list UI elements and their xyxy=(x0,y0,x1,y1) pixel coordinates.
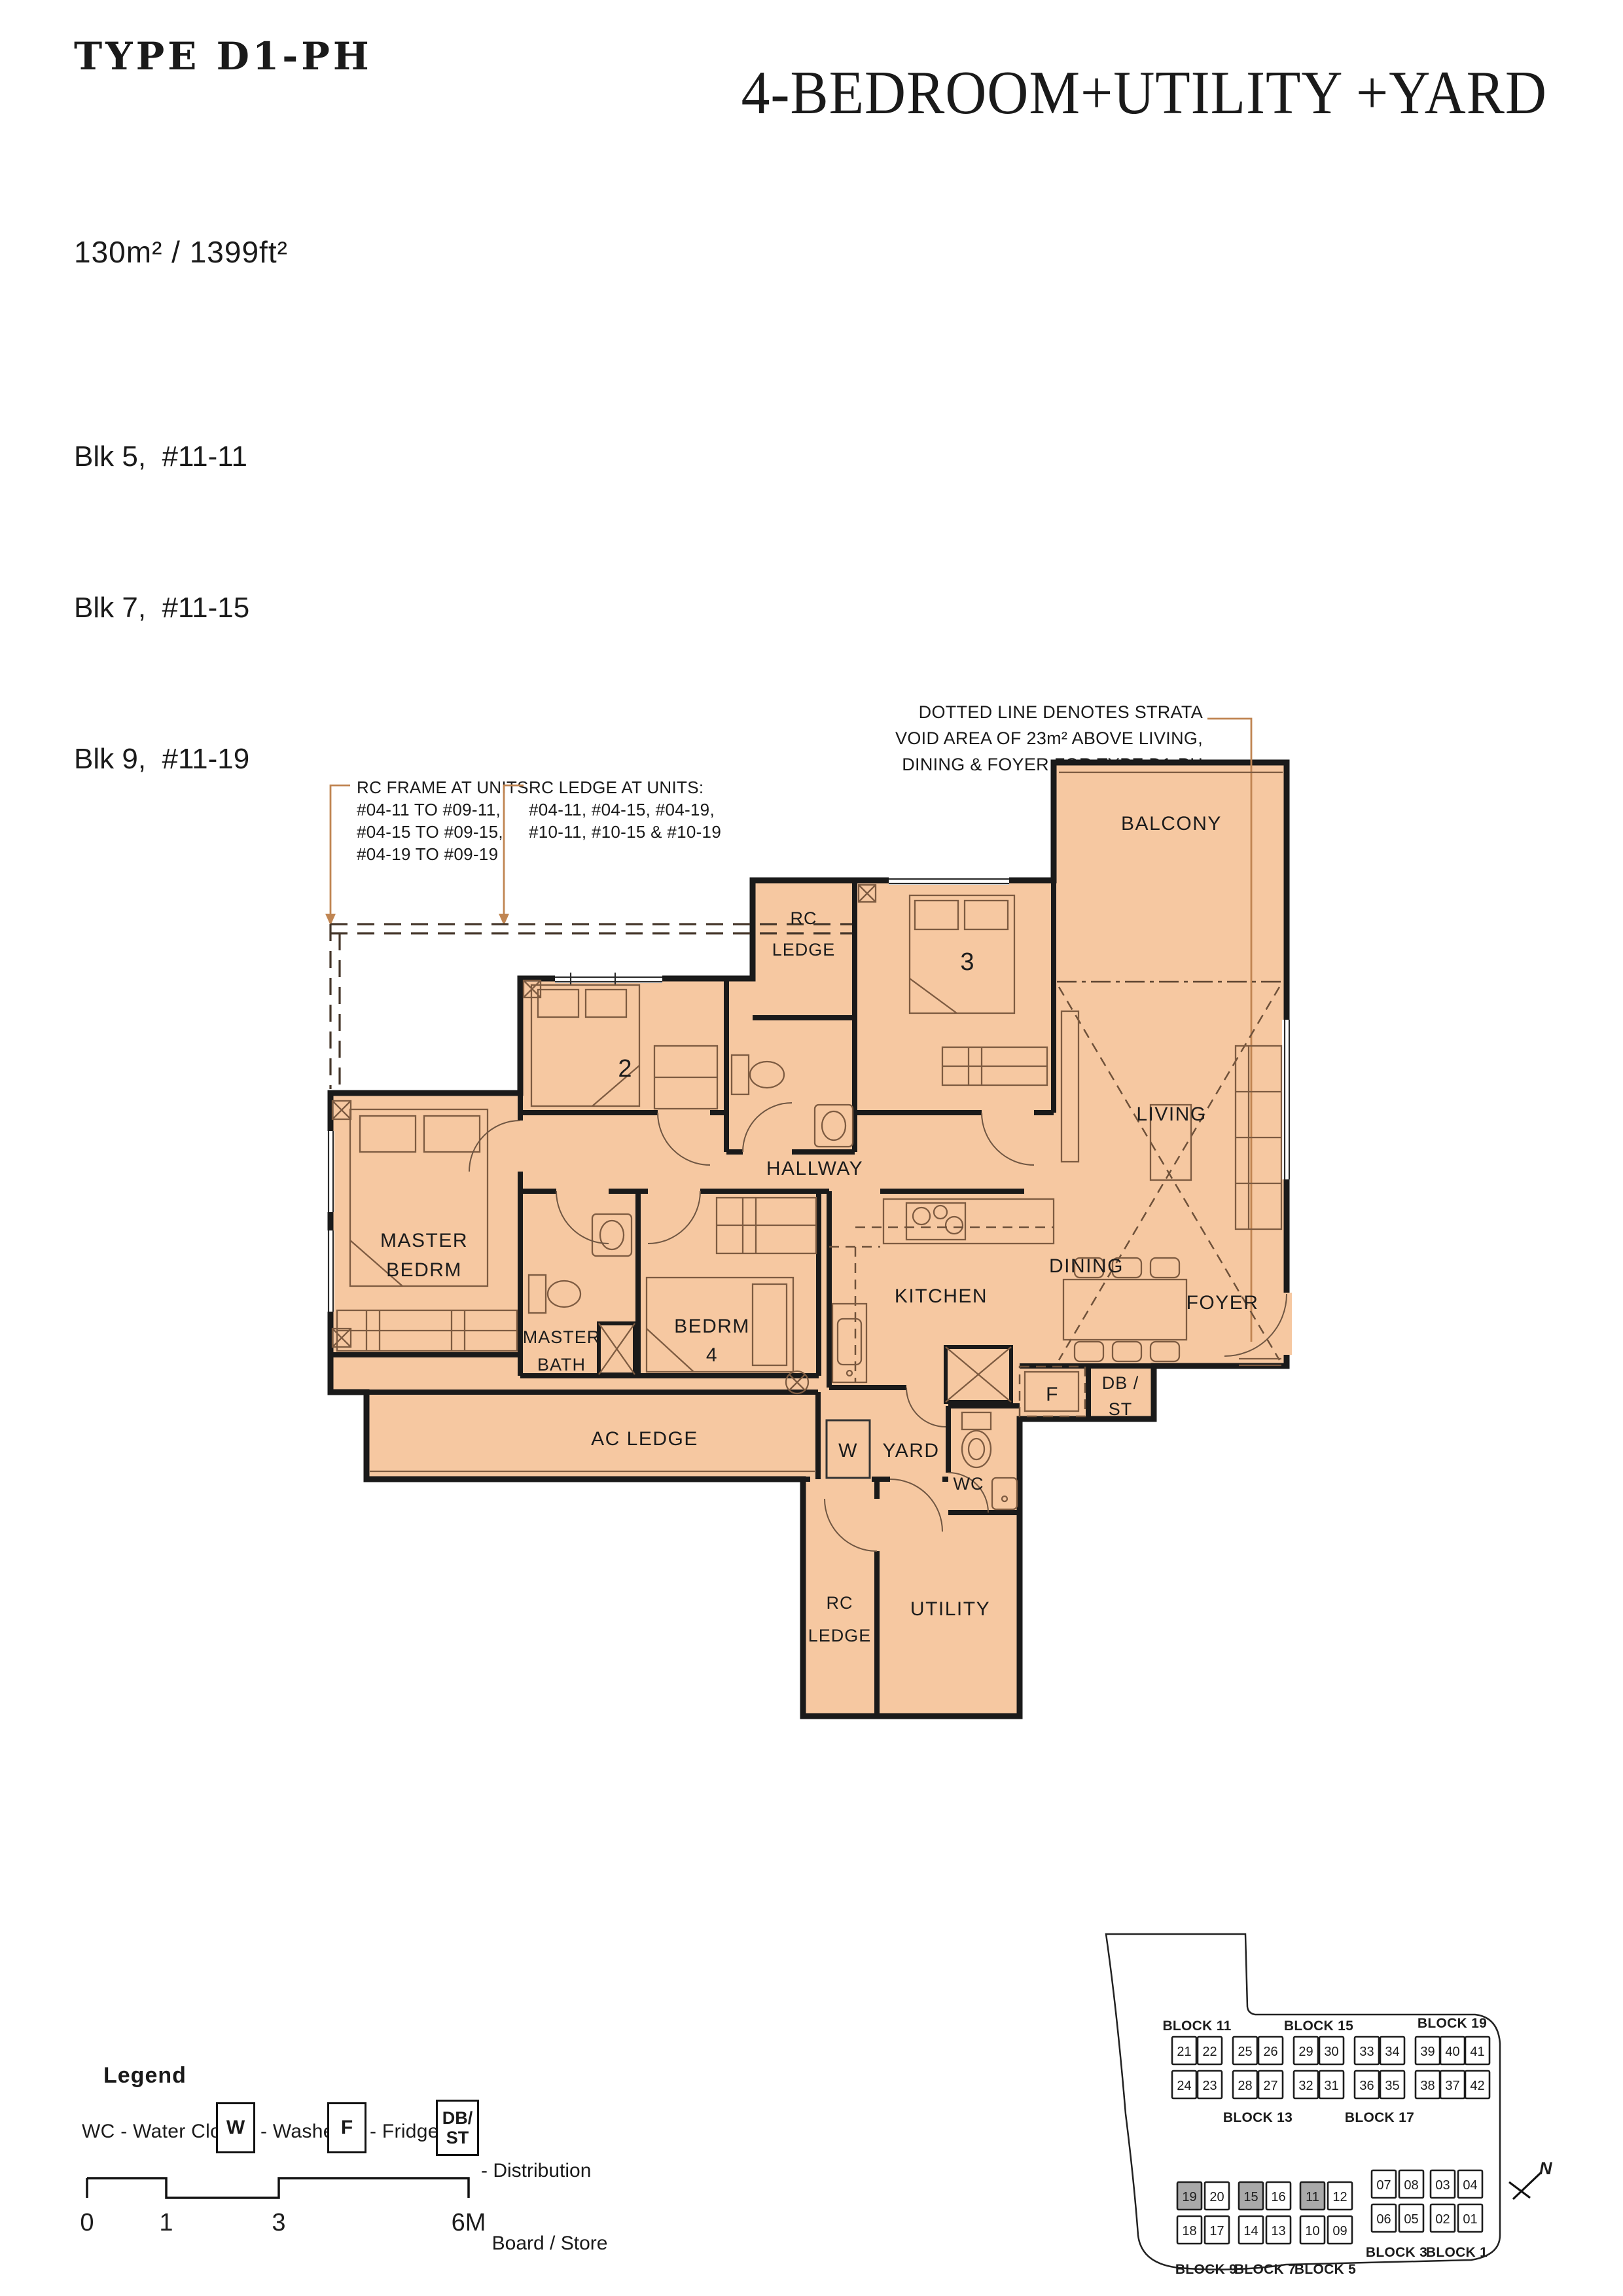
site-unit-number: 10 xyxy=(1305,2224,1319,2238)
site-unit-number: 39 xyxy=(1420,2045,1435,2059)
unit-outline xyxy=(330,762,1287,1716)
unit-list-item: Blk 9, #11-19 xyxy=(74,734,249,784)
site-unit-number: 31 xyxy=(1324,2079,1338,2093)
site-block-label: BLOCK 1 xyxy=(1426,2245,1488,2260)
site-unit-number: 29 xyxy=(1298,2045,1313,2059)
site-unit-number: 19 xyxy=(1182,2190,1196,2204)
site-unit-number: 15 xyxy=(1243,2190,1258,2204)
label-balcony: BALCONY xyxy=(1121,813,1222,834)
site-block-label: BLOCK 13 xyxy=(1223,2110,1293,2125)
north-arrow: N xyxy=(1509,2159,1552,2199)
site-unit-number: 26 xyxy=(1263,2045,1277,2059)
label-master-1: MASTER xyxy=(380,1230,468,1251)
site-unit-number: 41 xyxy=(1470,2045,1484,2059)
scale-1: 1 xyxy=(159,2209,173,2236)
site-unit-number: 09 xyxy=(1332,2224,1347,2238)
site-unit-number: 06 xyxy=(1376,2212,1391,2227)
unit-type-label: TYPE D1-PH xyxy=(74,34,372,79)
site-unit-number: 34 xyxy=(1385,2045,1399,2059)
site-unit-number: 16 xyxy=(1271,2190,1285,2204)
site-unit-number: 42 xyxy=(1470,2079,1484,2093)
scale-6m: 6M xyxy=(452,2209,486,2236)
washer-symbol: W xyxy=(216,2102,255,2153)
north-label: N xyxy=(1539,2159,1552,2178)
site-block-label: BLOCK 17 xyxy=(1345,2110,1414,2125)
label-mbath-1: MASTER xyxy=(523,1327,601,1347)
site-block-label: BLOCK 7 xyxy=(1234,2262,1296,2277)
site-unit-number: 03 xyxy=(1435,2178,1450,2193)
site-unit-number: 01 xyxy=(1463,2212,1477,2227)
label-acledge: AC LEDGE xyxy=(591,1428,698,1450)
floorplan-drawing: BALCONY LIVING DINING FOYER HALLWAY KITC… xyxy=(288,655,1335,1767)
site-unit-number: 27 xyxy=(1263,2079,1277,2093)
site-unit-number: 28 xyxy=(1238,2079,1252,2093)
site-block-label: BLOCK 11 xyxy=(1162,2018,1231,2034)
site-unit-number: 23 xyxy=(1202,2079,1217,2093)
site-unit-number: 38 xyxy=(1420,2079,1435,2093)
label-fridge: F xyxy=(1046,1384,1059,1405)
label-utility: UTILITY xyxy=(910,1598,990,1620)
site-unit-number: 12 xyxy=(1332,2190,1347,2204)
label-rcledge-bot-1: RC xyxy=(827,1593,853,1613)
site-block-label: BLOCK 19 xyxy=(1418,2016,1487,2031)
label-hallway: HALLWAY xyxy=(766,1158,863,1179)
site-unit-number: 14 xyxy=(1243,2224,1258,2238)
label-db-2: ST xyxy=(1109,1399,1133,1419)
label-db-1: DB / xyxy=(1102,1373,1139,1393)
site-unit-number: 40 xyxy=(1445,2045,1459,2059)
page-title: 4-BEDROOM+UTILITY +YARD xyxy=(741,58,1547,128)
label-yard: YARD xyxy=(882,1440,939,1462)
label-master-2: BEDRM xyxy=(386,1259,462,1281)
scale-0: 0 xyxy=(80,2209,94,2236)
site-unit-number: 35 xyxy=(1385,2079,1399,2093)
floorplan-page: TYPE D1-PH 4-BEDROOM+UTILITY +YARD 130m²… xyxy=(0,0,1623,2296)
site-unit-number: 05 xyxy=(1404,2212,1418,2227)
site-unit-number: 07 xyxy=(1376,2178,1391,2193)
label-washer: W xyxy=(838,1440,858,1462)
site-unit-number: 08 xyxy=(1404,2178,1418,2193)
site-unit-number: 25 xyxy=(1238,2045,1252,2059)
site-unit-number: 11 xyxy=(1306,2190,1319,2204)
label-kitchen: KITCHEN xyxy=(895,1285,988,1307)
label-foyer: FOYER xyxy=(1186,1292,1259,1314)
site-unit-number: 20 xyxy=(1209,2190,1224,2204)
site-unit-number: 33 xyxy=(1359,2045,1374,2059)
unit-list: Blk 5, #11-11 Blk 7, #11-15 Blk 9, #11-1… xyxy=(74,331,249,885)
site-unit-number: 36 xyxy=(1359,2079,1374,2093)
site-unit-number: 21 xyxy=(1177,2045,1191,2059)
site-unit-number: 24 xyxy=(1177,2079,1191,2093)
dbst-symbol-line: ST xyxy=(446,2128,469,2147)
label-dining: DINING xyxy=(1049,1255,1124,1277)
label-bed4-1: BEDRM xyxy=(674,1316,750,1337)
site-block-label: BLOCK 3 xyxy=(1366,2245,1427,2260)
site-unit-number: 02 xyxy=(1435,2212,1450,2227)
site-unit-number: 13 xyxy=(1271,2224,1285,2238)
label-bed3: 3 xyxy=(960,948,974,976)
scale-bar: 0 1 3 6M xyxy=(71,2165,503,2240)
unit-list-item: Blk 7, #11-15 xyxy=(74,583,249,633)
label-mbath-2: BATH xyxy=(537,1355,586,1374)
site-unit-number: 32 xyxy=(1298,2079,1313,2093)
legend-title: Legend xyxy=(103,2063,187,2089)
label-wc: WC xyxy=(954,1474,984,1494)
fridge-symbol: F xyxy=(327,2102,366,2153)
scale-3: 3 xyxy=(272,2209,285,2236)
site-unit-number: 17 xyxy=(1209,2224,1224,2238)
label-rcledge-top-2: LEDGE xyxy=(772,940,836,960)
site-block-label: BLOCK 9 xyxy=(1175,2262,1237,2277)
site-unit-number: 37 xyxy=(1445,2079,1459,2093)
rc-ledge-leader xyxy=(499,785,524,925)
dbst-symbol-line: DB/ xyxy=(442,2108,473,2128)
label-bed4-2: 4 xyxy=(706,1344,718,1366)
label-rcledge-top-1: RC xyxy=(791,908,817,928)
site-unit-number: 04 xyxy=(1463,2178,1477,2193)
site-block-label: BLOCK 5 xyxy=(1294,2262,1356,2277)
site-unit-number: 18 xyxy=(1182,2224,1196,2238)
unit-area: 130m² / 1399ft² xyxy=(74,234,288,270)
unit-list-item: Blk 5, #11-11 xyxy=(74,431,249,482)
label-living: LIVING xyxy=(1136,1103,1206,1125)
site-block-label: BLOCK 15 xyxy=(1284,2018,1353,2034)
scale-bar-line xyxy=(87,2178,469,2198)
rc-frame-leader xyxy=(325,785,350,925)
site-unit-number: 30 xyxy=(1324,2045,1338,2059)
site-unit-number: 22 xyxy=(1202,2045,1217,2059)
dbst-symbol: DB/ ST xyxy=(436,2100,479,2156)
label-rcledge-bot-2: LEDGE xyxy=(808,1626,872,1645)
label-bed2: 2 xyxy=(618,1055,632,1083)
site-plan: 2122252629303334394041242328273231363538… xyxy=(1086,1918,1584,2294)
legend-fridge: - Fridge xyxy=(370,2121,439,2143)
